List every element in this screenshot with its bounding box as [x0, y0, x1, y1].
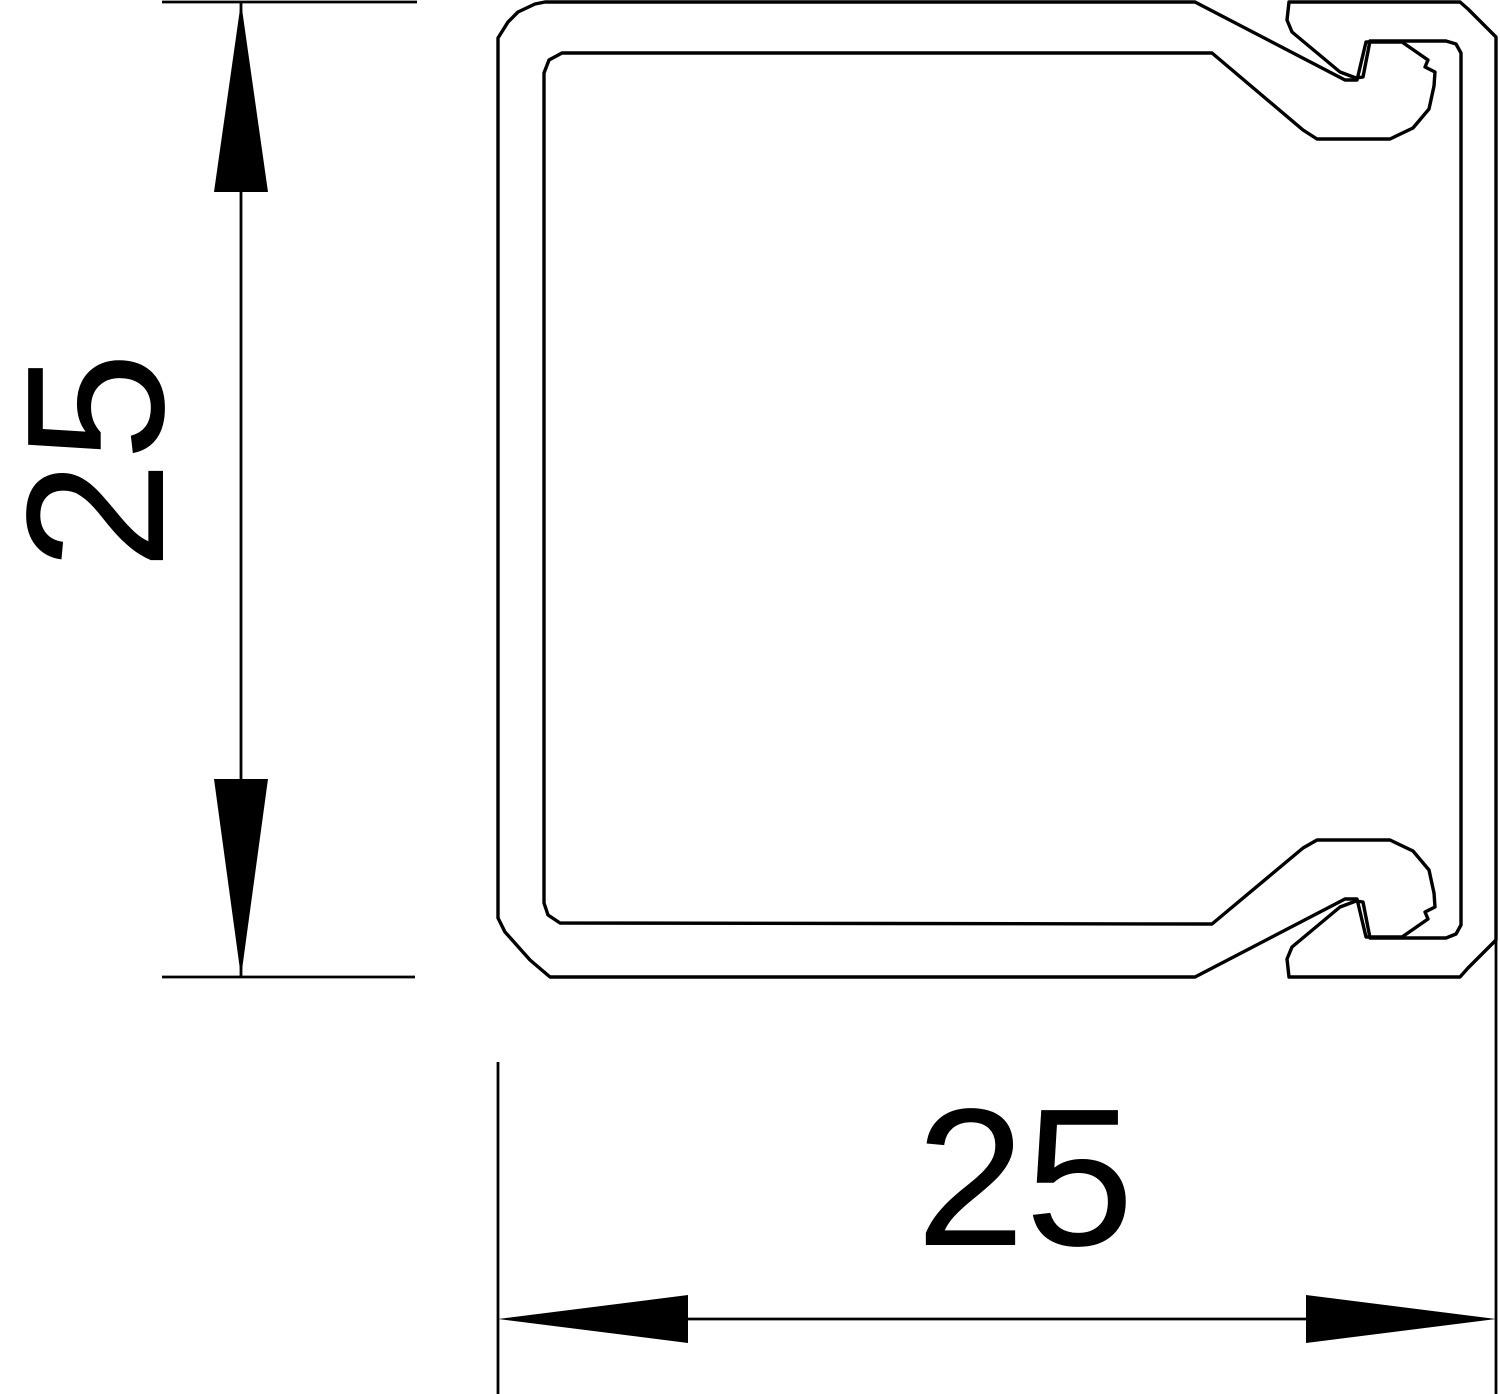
height-dimension-label: 25 — [0, 352, 205, 570]
width-dimension-label: 25 — [916, 1068, 1134, 1287]
trunking-profile-drawing: 25 25 — [0, 0, 1500, 1394]
technical-drawing: 25 25 — [0, 0, 1500, 1394]
drawing-background — [0, 0, 1500, 1394]
